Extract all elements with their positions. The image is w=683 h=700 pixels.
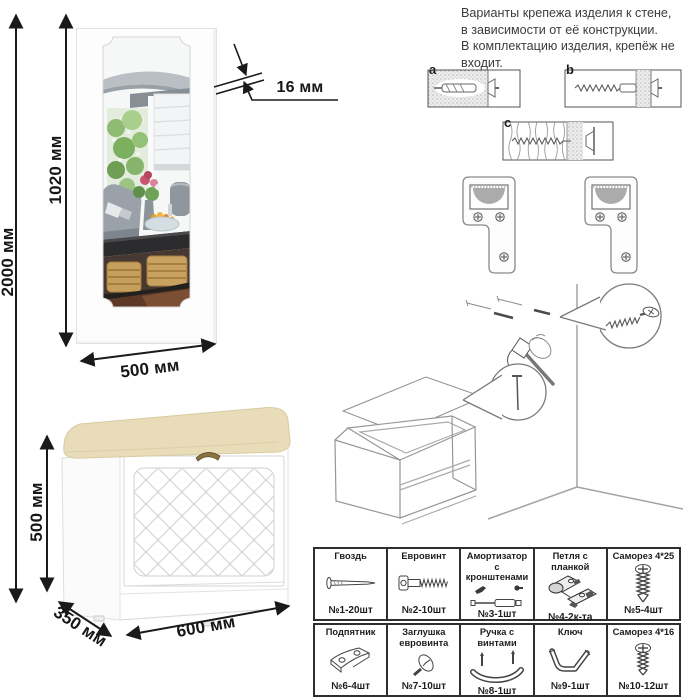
fastener-diagram-c bbox=[503, 122, 613, 160]
screw-cap-icon bbox=[390, 648, 457, 681]
hinge-icon bbox=[537, 572, 604, 612]
part-cell-handle: Ручка с винтами №8-1шт bbox=[461, 625, 534, 695]
note-line: В комплектацию изделия, крепёж не bbox=[461, 39, 675, 53]
part-cell-screw-4x16: Саморез 4*16 №10-12шт bbox=[608, 625, 679, 695]
wall-fastener-diagrams bbox=[420, 58, 683, 166]
note-line: входит. bbox=[461, 56, 503, 70]
part-cell-euroscrew: Евровинт №2-10шт bbox=[388, 549, 461, 619]
part-cell-damper: Амортизатор с кронштенами №3-1шт bbox=[461, 549, 534, 619]
bench-foot bbox=[94, 616, 104, 621]
part-cell-footplate: Подпятник №6-4шт bbox=[315, 625, 388, 695]
assembly-instruction-sheet: a b c bbox=[0, 0, 683, 700]
assembly-illustration bbox=[310, 270, 683, 545]
nail-callout bbox=[463, 364, 546, 420]
door-diamond-pattern bbox=[134, 468, 274, 576]
key-icon bbox=[537, 638, 604, 682]
nail-icon bbox=[317, 562, 384, 606]
dim-thickness: 16 мм bbox=[277, 79, 324, 97]
handle-icon bbox=[463, 648, 530, 686]
mounting-note: Варианты крепежа изделия к стене, в зави… bbox=[461, 5, 683, 71]
part-cell-screw-4x25: Саморез 4*25 №5-4шт bbox=[608, 549, 679, 619]
part-cell-cap: Заглушка евровинта №7-10шт bbox=[388, 625, 461, 695]
fastener-diagram-a bbox=[428, 70, 520, 107]
diagram-label-a: a bbox=[429, 62, 436, 77]
hanging-brackets bbox=[458, 172, 648, 278]
screw-icon bbox=[610, 638, 677, 682]
screw-icon bbox=[610, 562, 677, 606]
part-cell-hinge: Петля с планкой №4-2к-та bbox=[535, 549, 608, 619]
dim-mirror-width: 500 мм bbox=[119, 355, 180, 382]
note-line: в зависимости от её конструкции. bbox=[461, 23, 658, 37]
hanging-bracket bbox=[463, 177, 515, 273]
part-cell-nail: Гвоздь №1-20шт bbox=[315, 549, 388, 619]
screw-callout bbox=[560, 284, 661, 348]
gas-damper-icon bbox=[463, 583, 530, 609]
part-cell-key: Ключ №9-1шт bbox=[535, 625, 608, 695]
dim-bench-height: 500 мм bbox=[27, 482, 47, 541]
fastener-diagram-b bbox=[565, 70, 681, 107]
euro-screw-icon bbox=[390, 562, 457, 606]
dim-total-height: 2000 мм bbox=[0, 227, 18, 296]
shoe-bench-illustration bbox=[50, 396, 298, 628]
flying-nails bbox=[466, 296, 550, 318]
foot-plate-icon bbox=[317, 638, 384, 682]
hardware-parts-table: Гвоздь №1-20шт Евровинт bbox=[313, 547, 681, 697]
note-line: Варианты крепежа изделия к стене, bbox=[461, 6, 671, 20]
dim-mirror-height: 1020 мм bbox=[46, 135, 66, 204]
parts-row-1: Гвоздь №1-20шт Евровинт bbox=[313, 547, 681, 621]
mirror-illustration bbox=[76, 28, 217, 344]
mirror-reflection-image bbox=[102, 36, 191, 308]
bench-carcass bbox=[335, 416, 476, 524]
diagram-label-c: c bbox=[504, 115, 511, 130]
bench-side-panel bbox=[62, 454, 120, 620]
hanging-bracket bbox=[585, 177, 637, 273]
parts-row-2: Подпятник №6-4шт Заглушка евровинта bbox=[313, 623, 681, 697]
